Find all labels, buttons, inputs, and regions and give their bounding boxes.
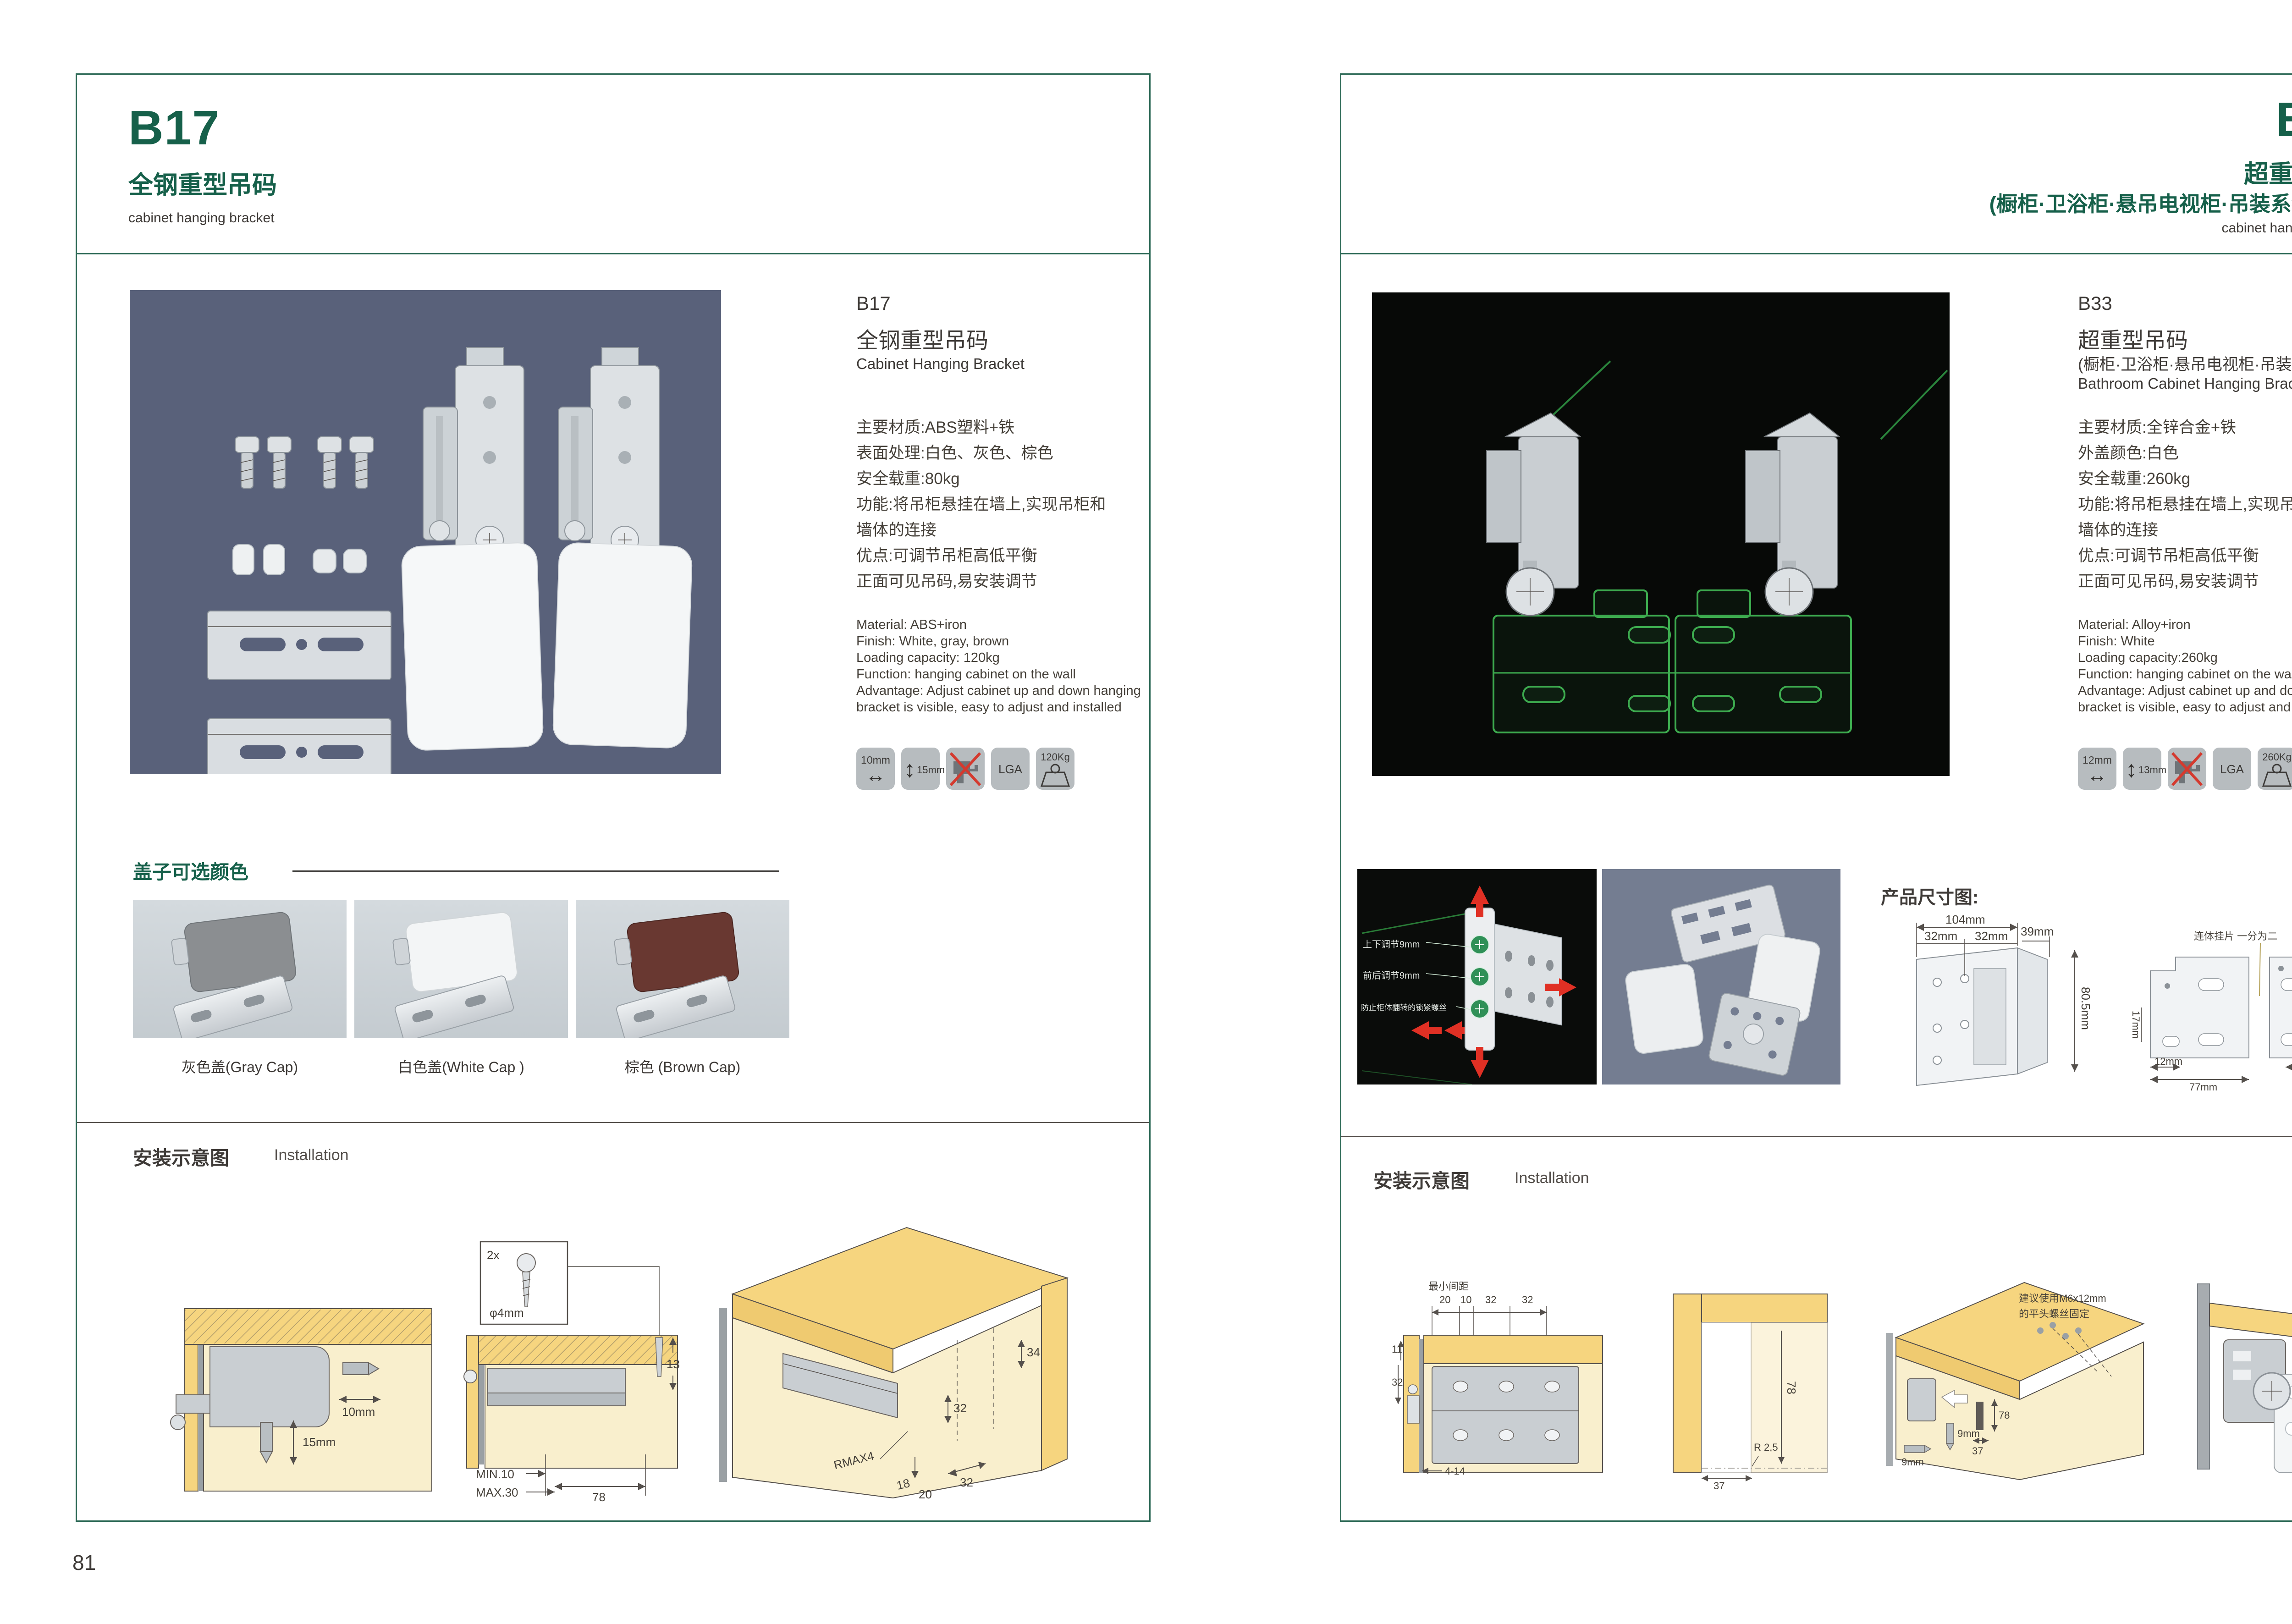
adjust-label-lock: 防止柜体翻转的锁紧螺丝 xyxy=(1361,1001,1447,1013)
spec-line: 优点:可调节吊柜高低平衡 xyxy=(2078,543,2292,569)
spec-line: 正面可见吊码,易安装调节 xyxy=(2078,569,2292,595)
catalog-spread: { "colors": { "brand_green": "#16604a", … xyxy=(0,0,2292,1624)
drill-depth-icon: ↕ 15mm xyxy=(901,748,940,790)
dim-label: 78 xyxy=(592,1490,606,1504)
dim-label: 10mm xyxy=(342,1405,375,1419)
spec-name-cn: 全钢重型吊码 xyxy=(856,322,988,354)
spec-name-cn: 超重型吊码 xyxy=(2078,322,2188,354)
drill-width-icon: 12mm ↔ xyxy=(2078,748,2116,790)
dimension-drawing-plates: 连体挂片 一分为二 55mm 39mm 55mm 8mm 17mm 12mm 6… xyxy=(2130,927,2292,1092)
spec-line: 表面处理:白色、灰色、棕色 xyxy=(856,440,1106,466)
cap-option-brown xyxy=(576,900,789,1038)
spec-line: 主要材质:全锌合金+铁 xyxy=(2078,415,2292,440)
load-capacity-icon: 260Kg xyxy=(2258,748,2292,790)
spec-line: Function: hanging cabinet on the wall xyxy=(856,666,1141,683)
installation-title-cn: 安装示意图 xyxy=(133,1143,229,1171)
spec-line: Material: ABS+iron xyxy=(856,617,1141,633)
lga-certified-icon: LGA xyxy=(991,748,1030,790)
spec-line: Finish: White, gray, brown xyxy=(856,633,1141,650)
spec-name-en: Cabinet Hanging Bracket xyxy=(856,355,1025,373)
lga-label: LGA xyxy=(2213,762,2251,776)
cap-knob xyxy=(171,937,190,966)
install-diagram-spacing: 最小间距 20 10 32 32 11 32 4-14 xyxy=(1392,1266,1612,1486)
spec-line: Finish: White xyxy=(2078,633,2292,650)
dim-label: 32 xyxy=(1522,1294,1533,1306)
dim-label: 10 xyxy=(1460,1294,1471,1306)
dim-label: 80.5mm xyxy=(2078,987,2093,1030)
cap-caption-brown: 棕色 (Brown Cap) xyxy=(576,1056,789,1077)
product-name-en-heading: cabinet hanging bracket xyxy=(128,210,275,226)
install-diagram-screw: 2x φ4mm 13 MIN.10 MAX.30 78 xyxy=(457,1239,687,1505)
spec-line: 安全载重:260kg xyxy=(2078,466,2292,492)
spec-name-en: Bathroom Cabinet Hanging Bracket xyxy=(2078,375,2292,392)
adjustment-detail-photo: 上下调节9mm 前后调节9mm 防止柜体翻转的锁紧螺丝 xyxy=(1357,869,1597,1085)
dim-label: 2x xyxy=(487,1248,499,1262)
exploded-parts-illustration xyxy=(1602,869,1840,1085)
dim-label: 4-14 xyxy=(1445,1465,1465,1477)
spec-line: Advantage: Adjust cabinet up and down ha… xyxy=(2078,683,2292,699)
dim-label: 104mm xyxy=(1945,913,1985,927)
spec-line: Function: hanging cabinet on the wall xyxy=(2078,666,2292,683)
lga-label: LGA xyxy=(991,762,1030,776)
white-covers xyxy=(401,542,692,751)
spec-line: Material: Alloy+iron xyxy=(2078,617,2292,633)
screw-section-drawing xyxy=(457,1239,687,1505)
spec-line: 墙体的连接 xyxy=(856,517,1106,543)
spec-code: B17 xyxy=(856,292,891,314)
horizontal-arrow-icon: ↔ xyxy=(2078,764,2116,787)
dim-label: 32 xyxy=(1485,1294,1496,1306)
drill-depth-label: 13mm xyxy=(2138,764,2166,776)
weight-glyph xyxy=(1036,762,1074,790)
dim-label: 78 xyxy=(1784,1381,1798,1394)
dim-label: 37 xyxy=(1713,1480,1725,1492)
feature-icons-row: 10mm ↔ ↕ 15mm LGA 120Kg xyxy=(856,748,1074,790)
screws xyxy=(235,437,374,488)
load-capacity-icon: 120Kg xyxy=(1036,748,1074,790)
dimension-drawing-bracket: 104mm 32mm 32mm 39mm 80.5mm xyxy=(1891,914,2111,1111)
install-diagram-mounted xyxy=(2180,1271,2292,1482)
catalog-page-right: B33 超重型吊码 (橱柜·卫浴柜·悬吊电视柜·吊装系统 专用) cabinet… xyxy=(1340,73,2292,1522)
dim-label: 20 xyxy=(1439,1294,1450,1306)
cap-colors-title: 盖子可选颜色 xyxy=(133,857,248,885)
drill-depth-icon: ↕ 13mm xyxy=(2123,748,2161,790)
lga-certified-icon: LGA xyxy=(2213,748,2251,790)
product-name-cn-heading: 超重型吊码 xyxy=(2244,154,2292,190)
dim-label: 77mm xyxy=(2189,1081,2217,1093)
dim-note: 最小间距 xyxy=(1428,1278,1469,1293)
spec-line: Loading capacity:260kg xyxy=(2078,650,2292,666)
spec-line: 安全载重:80kg xyxy=(856,466,1106,492)
dim-label: 39mm xyxy=(2021,925,2054,939)
main-product-photo xyxy=(1372,292,1950,776)
feature-icons-row: 12mm ↔ ↕ 13mm LGA 260Kg xyxy=(2078,748,2292,790)
cap-option-white xyxy=(354,900,568,1038)
weight-glyph xyxy=(2258,762,2292,790)
product-dimensions-title: 产品尺寸图: xyxy=(1881,882,1978,909)
no-drill-icon xyxy=(2168,748,2206,790)
dim-label: 15mm xyxy=(303,1435,336,1449)
product-name-en-heading: cabinet hanging bracket xyxy=(2221,220,2292,236)
horizontal-arrow-icon: ↔ xyxy=(856,764,895,787)
page-header: B33 超重型吊码 (橱柜·卫浴柜·悬吊电视柜·吊装系统 专用) cabinet… xyxy=(1341,75,2292,254)
spec-line: 外盖颜色:白色 xyxy=(2078,440,2292,466)
spacing-drawing xyxy=(1392,1266,1612,1486)
install-diagram-iso: 34 32 RMAX4 18 20 32 xyxy=(700,1202,1076,1509)
no-drill-icon xyxy=(946,748,985,790)
dim-label: 37 xyxy=(1972,1445,1983,1457)
section-divider xyxy=(77,1122,1149,1123)
dim-label: 32mm xyxy=(1924,929,1957,943)
cap-knob xyxy=(392,937,411,966)
dim-label: 9mm xyxy=(1957,1428,1980,1440)
vertical-arrow-icon: ↕ xyxy=(904,756,915,782)
spec-line: 功能:将吊柜悬挂在墙上,实现吊柜和 xyxy=(856,492,1106,517)
bracket-right xyxy=(1746,413,1840,616)
load-label: 120Kg xyxy=(1036,751,1074,763)
adjust-label-frontback: 前后调节9mm xyxy=(1363,968,1420,981)
cabinet-section-drawing xyxy=(169,1285,444,1500)
dim-label: 34 xyxy=(1027,1345,1040,1360)
dim-label: R 2,5 xyxy=(1754,1442,1778,1453)
product-code-heading: B17 xyxy=(128,100,220,156)
page-number-left: 81 xyxy=(72,1550,96,1575)
installation-title-cn: 安装示意图 xyxy=(1373,1166,1470,1194)
dim-label: 17mm xyxy=(2130,1011,2142,1039)
iso-screws-drawing xyxy=(1882,1262,2153,1486)
dim-label: MIN.10 xyxy=(476,1467,514,1481)
cap-caption-gray: 灰色盖(Gray Cap) xyxy=(133,1056,347,1077)
dim-note: 连体挂片 一分为二 xyxy=(2194,928,2277,943)
spec-line: 正面可见吊码,易安装调节 xyxy=(856,569,1106,595)
spec-lines-cn: 主要材质:全锌合金+铁 外盖颜色:白色 安全载重:260kg 功能:将吊柜悬挂在… xyxy=(2078,415,2292,595)
installation-title-en: Installation xyxy=(1515,1169,1589,1187)
dim-label: 32 xyxy=(1392,1376,1403,1388)
page-header: B17 全钢重型吊码 cabinet hanging bracket xyxy=(77,75,1149,254)
dim-label: 9mm xyxy=(1901,1456,1924,1468)
spec-usage: (橱柜·卫浴柜·悬吊电视柜·吊装系统 专用) xyxy=(2078,352,2292,375)
bracket-left xyxy=(1487,413,1581,616)
cap-knob xyxy=(614,937,633,966)
dim-label: MAX.30 xyxy=(476,1486,518,1500)
dim-label: 12mm xyxy=(2154,1056,2182,1068)
spec-line: Loading capacity: 120kg xyxy=(856,650,1141,666)
product-code-heading: B33 xyxy=(2276,92,2292,148)
adjust-label-updown: 上下调节9mm xyxy=(1363,937,1420,950)
dim-label: 78 xyxy=(1999,1409,2010,1421)
plastic-anchors xyxy=(233,545,366,575)
catalog-page-left: B17 全钢重型吊码 cabinet hanging bracket xyxy=(76,73,1151,1522)
dim-label: 11 xyxy=(1392,1343,1402,1355)
mounted-bracket-drawing xyxy=(2180,1271,2292,1482)
section-divider xyxy=(1341,1136,2292,1137)
product-usage-heading: (橱柜·卫浴柜·悬吊电视柜·吊装系统 专用) xyxy=(1989,187,2292,218)
no-drill-glyph xyxy=(2168,748,2206,790)
plates-dimension-svg xyxy=(2130,927,2292,1092)
spec-line: 墙体的连接 xyxy=(2078,517,2292,543)
spec-line: Advantage: Adjust cabinet up and down ha… xyxy=(856,683,1141,699)
drill-depth-label: 15mm xyxy=(917,764,945,776)
wall-plates xyxy=(208,611,391,774)
product-name-cn-heading: 全钢重型吊码 xyxy=(128,165,277,201)
cap-colors-rule xyxy=(292,870,779,872)
install-diagram-iso-screws: 建议使用M6x12mm 的平头螺丝固定 78 37 9mm 9mm xyxy=(1882,1262,2153,1486)
spec-lines-cn: 主要材质:ABS塑料+铁 表面处理:白色、灰色、棕色 安全载重:80kg 功能:… xyxy=(856,415,1106,595)
product-parts-illustration xyxy=(1372,292,1950,776)
product-parts-illustration xyxy=(130,290,721,774)
load-label: 260Kg xyxy=(2258,751,2292,763)
exploded-parts-photo xyxy=(1602,869,1840,1085)
spec-lines-en: Material: Alloy+iron Finish: White Loadi… xyxy=(2078,617,2292,716)
dim-label: φ4mm xyxy=(490,1306,524,1320)
dim-note: 的平头螺丝固定 xyxy=(2019,1306,2089,1321)
dim-label: 20 xyxy=(919,1487,932,1502)
main-product-photo xyxy=(130,290,721,774)
panel-drawing xyxy=(1644,1280,1846,1486)
spec-lines-en: Material: ABS+iron Finish: White, gray, … xyxy=(856,617,1141,716)
spec-line: bracket is visible, easy to adjust and i… xyxy=(2078,699,2292,716)
vertical-arrow-icon: ↕ xyxy=(2126,756,2137,782)
spec-code: B33 xyxy=(2078,292,2112,314)
install-diagram-panel: 78 R 2,5 37 xyxy=(1644,1280,1846,1486)
dim-label: 32 xyxy=(960,1475,973,1490)
dim-label: 32mm xyxy=(1975,929,2008,943)
spec-line: 功能:将吊柜悬挂在墙上,实现吊柜和 xyxy=(2078,492,2292,517)
cabinet-iso-drawing xyxy=(700,1202,1076,1509)
dim-label: 13 xyxy=(667,1357,680,1371)
spec-line: 优点:可调节吊柜高低平衡 xyxy=(856,543,1106,569)
dim-label: 32 xyxy=(953,1401,967,1415)
installation-title-en: Installation xyxy=(274,1146,349,1164)
cap-caption-white: 白色盖(White Cap ) xyxy=(354,1056,568,1077)
drill-width-icon: 10mm ↔ xyxy=(856,748,895,790)
spec-line: bracket is visible, easy to adjust and i… xyxy=(856,699,1141,716)
dim-note: 建议使用M6x12mm xyxy=(2019,1290,2106,1305)
no-drill-glyph xyxy=(946,748,985,790)
spec-line: 主要材质:ABS塑料+铁 xyxy=(856,415,1106,440)
install-diagram-section: 10mm 15mm xyxy=(169,1285,444,1500)
cap-option-gray xyxy=(133,900,347,1038)
